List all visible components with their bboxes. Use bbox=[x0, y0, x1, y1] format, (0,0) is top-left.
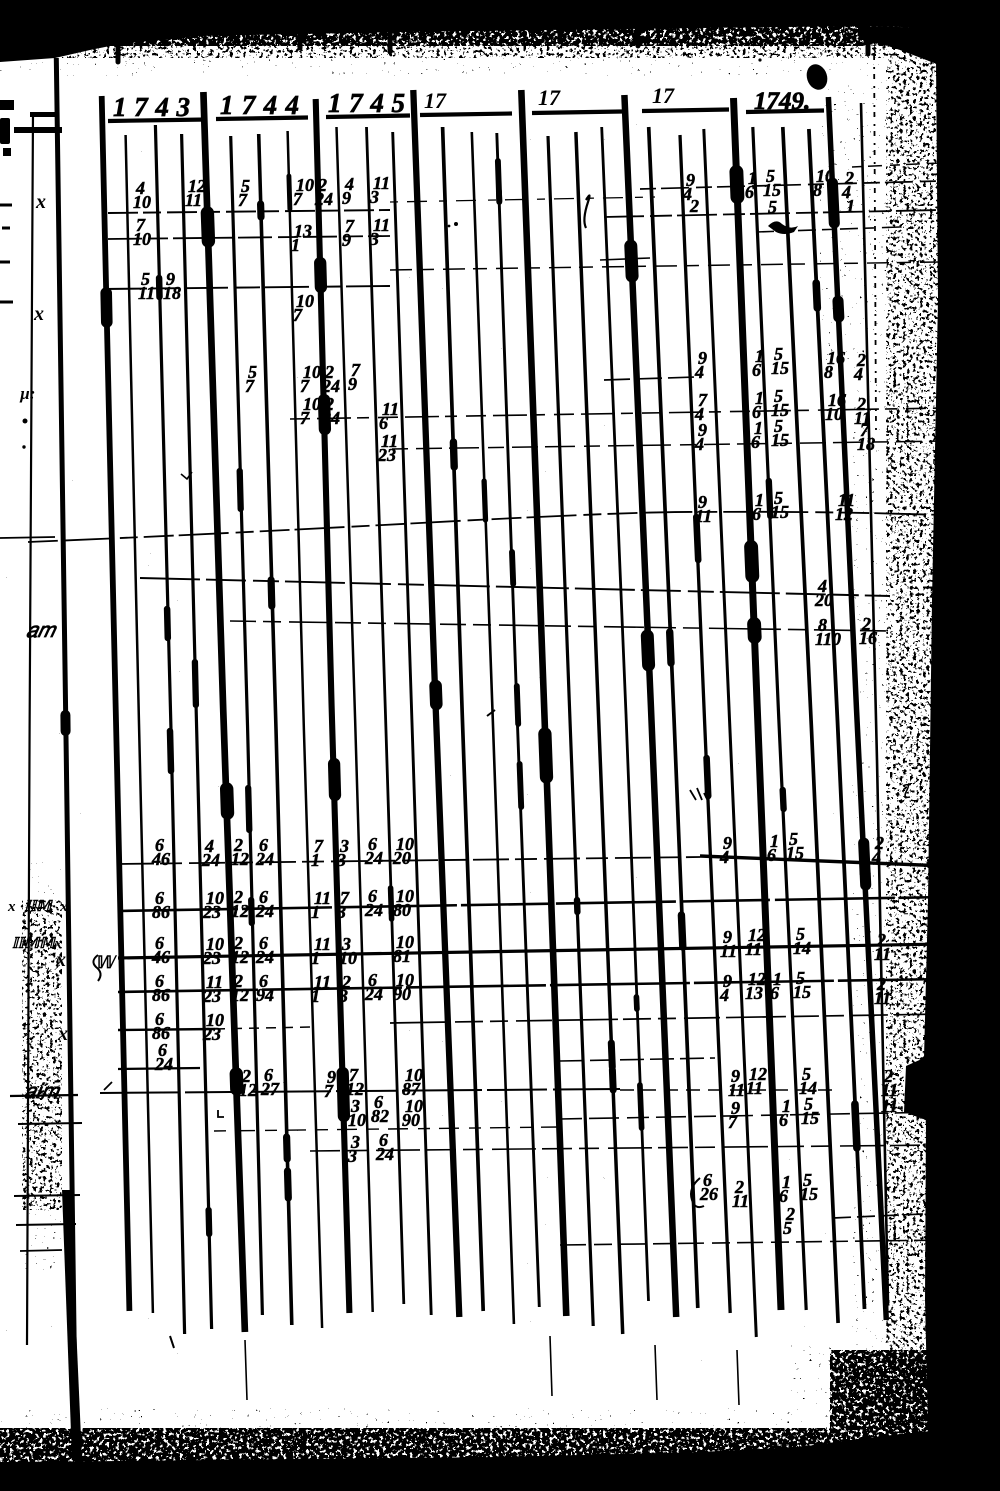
svg-text:17: 17 bbox=[538, 85, 561, 110]
svg-text:17: 17 bbox=[424, 88, 447, 113]
svg-text:17: 17 bbox=[652, 83, 675, 108]
svg-text:1749.: 1749. bbox=[754, 88, 810, 115]
